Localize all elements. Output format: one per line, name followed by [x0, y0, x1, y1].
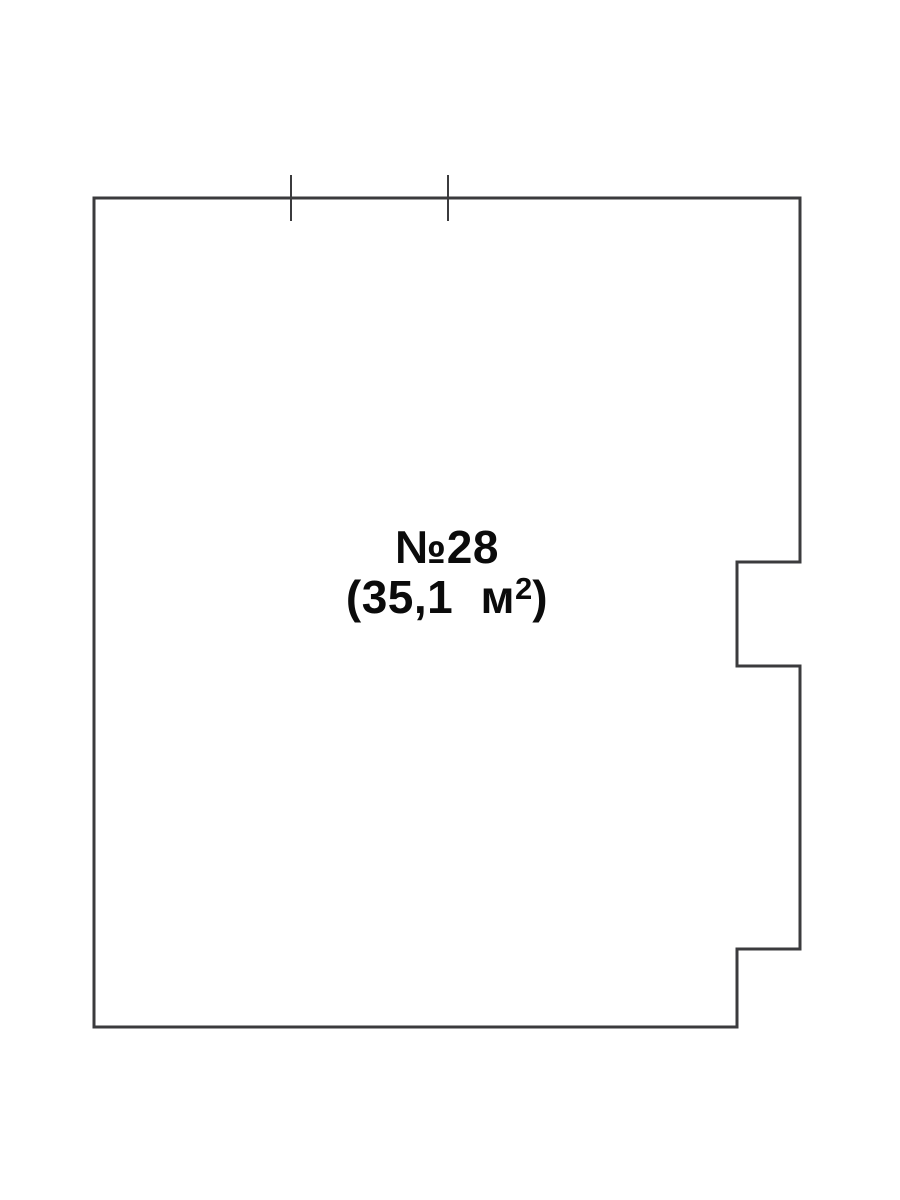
room-area: (35,1 м2)	[97, 572, 797, 628]
room-area-suffix: )	[532, 571, 548, 623]
room-area-superscript: 2	[515, 571, 532, 606]
room-number: №28	[97, 522, 797, 572]
room-label: №28 (35,1 м2)	[97, 522, 797, 628]
room-area-prefix: (35,1 м	[346, 571, 515, 623]
floor-plan: №28 (35,1 м2)	[0, 0, 900, 1200]
